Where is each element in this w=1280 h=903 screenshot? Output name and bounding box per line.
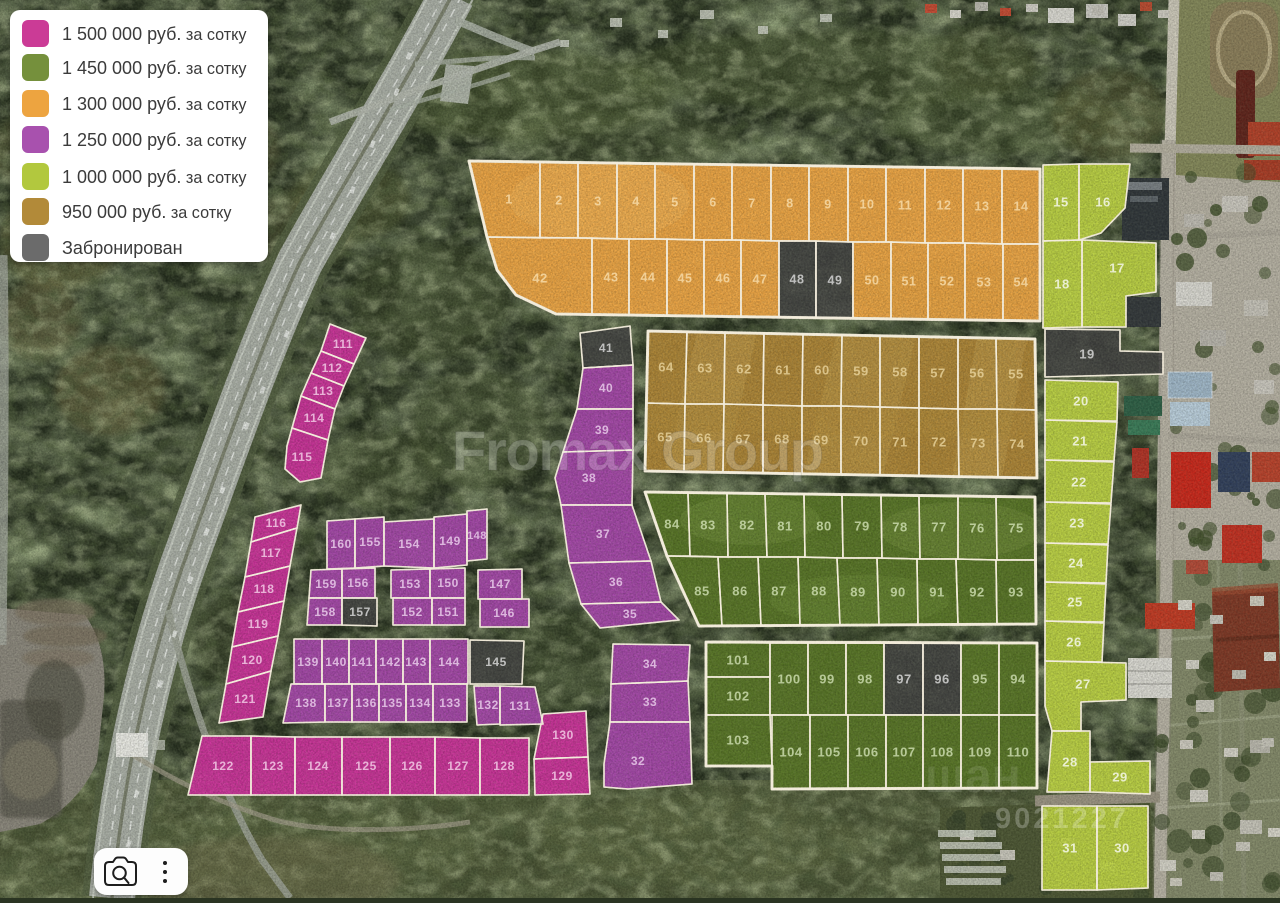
- svg-text:31: 31: [1062, 841, 1077, 856]
- svg-text:шан: шан: [925, 750, 1021, 803]
- svg-text:53: 53: [977, 275, 992, 289]
- svg-text:141: 141: [351, 655, 373, 669]
- svg-text:123: 123: [262, 759, 284, 773]
- svg-text:13: 13: [975, 199, 990, 213]
- svg-text:72: 72: [931, 435, 946, 450]
- svg-text:113: 113: [313, 384, 334, 398]
- svg-text:101: 101: [726, 653, 749, 668]
- svg-text:1 500 000 руб. за сотку: 1 500 000 руб. за сотку: [62, 24, 247, 44]
- svg-text:49: 49: [828, 273, 843, 287]
- svg-text:85: 85: [694, 584, 709, 599]
- svg-text:142: 142: [379, 655, 401, 669]
- svg-text:56: 56: [969, 366, 984, 381]
- svg-text:75: 75: [1008, 521, 1023, 536]
- svg-text:8: 8: [786, 196, 793, 210]
- svg-text:91: 91: [929, 585, 944, 600]
- svg-text:116: 116: [266, 516, 287, 530]
- svg-text:86: 86: [732, 584, 747, 599]
- svg-text:135: 135: [381, 696, 403, 710]
- svg-text:111: 111: [333, 337, 353, 351]
- svg-text:87: 87: [771, 584, 786, 599]
- svg-text:147: 147: [489, 577, 511, 591]
- svg-text:155: 155: [359, 535, 381, 549]
- svg-text:92: 92: [969, 585, 984, 600]
- svg-text:50: 50: [865, 273, 880, 287]
- svg-text:138: 138: [295, 696, 317, 710]
- svg-text:82: 82: [739, 518, 754, 533]
- svg-text:16: 16: [1095, 195, 1110, 210]
- svg-text:950 000 руб. за сотку: 950 000 руб. за сотку: [62, 202, 232, 222]
- svg-text:9021227: 9021227: [995, 803, 1129, 835]
- svg-text:28: 28: [1062, 755, 1077, 770]
- svg-text:84: 84: [664, 517, 680, 532]
- svg-text:1 450 000 руб. за сотку: 1 450 000 руб. за сотку: [62, 58, 247, 78]
- svg-text:36: 36: [609, 575, 623, 589]
- svg-text:34: 34: [643, 657, 657, 671]
- svg-text:104: 104: [779, 745, 802, 760]
- svg-text:90: 90: [890, 585, 905, 600]
- svg-text:154: 154: [398, 537, 420, 551]
- svg-text:23: 23: [1069, 516, 1084, 531]
- svg-text:102: 102: [726, 689, 749, 704]
- svg-text:144: 144: [438, 655, 460, 669]
- svg-text:18: 18: [1054, 277, 1069, 292]
- svg-text:119: 119: [248, 617, 269, 631]
- svg-text:10: 10: [860, 197, 875, 211]
- svg-text:81: 81: [777, 519, 792, 534]
- svg-text:100: 100: [777, 672, 800, 687]
- svg-text:45: 45: [678, 271, 693, 285]
- svg-text:9: 9: [824, 197, 831, 211]
- svg-text:139: 139: [297, 655, 319, 669]
- svg-text:77: 77: [931, 520, 946, 535]
- svg-text:133: 133: [439, 696, 461, 710]
- svg-text:80: 80: [816, 519, 831, 534]
- svg-text:52: 52: [940, 274, 955, 288]
- svg-text:3: 3: [594, 194, 601, 208]
- svg-text:107: 107: [892, 745, 915, 760]
- svg-text:76: 76: [969, 521, 984, 536]
- svg-text:63: 63: [697, 361, 712, 376]
- svg-text:42: 42: [532, 271, 547, 286]
- svg-text:41: 41: [599, 341, 613, 355]
- svg-text:103: 103: [726, 733, 749, 748]
- svg-text:98: 98: [857, 672, 872, 687]
- svg-text:71: 71: [892, 435, 907, 450]
- svg-text:1: 1: [505, 192, 512, 206]
- svg-text:44: 44: [641, 270, 656, 284]
- svg-text:73: 73: [970, 436, 985, 451]
- svg-text:25: 25: [1067, 595, 1082, 610]
- svg-text:12: 12: [937, 198, 952, 212]
- svg-text:120: 120: [241, 653, 263, 667]
- svg-text:30: 30: [1114, 841, 1129, 856]
- svg-text:152: 152: [401, 605, 423, 619]
- svg-text:Забронирован: Забронирован: [62, 238, 183, 258]
- svg-text:156: 156: [347, 576, 369, 590]
- svg-text:115: 115: [292, 450, 313, 464]
- svg-text:149: 149: [439, 534, 461, 548]
- svg-text:93: 93: [1008, 585, 1023, 600]
- svg-text:22: 22: [1071, 475, 1086, 490]
- svg-text:7: 7: [748, 196, 755, 210]
- svg-text:1 300 000 руб. за сотку: 1 300 000 руб. за сотку: [62, 94, 247, 114]
- svg-text:99: 99: [819, 672, 834, 687]
- svg-text:97: 97: [896, 672, 911, 687]
- svg-text:143: 143: [405, 655, 427, 669]
- svg-text:157: 157: [349, 605, 371, 619]
- svg-text:159: 159: [315, 577, 337, 591]
- svg-text:153: 153: [399, 577, 421, 591]
- svg-text:47: 47: [753, 272, 768, 286]
- svg-text:140: 140: [325, 655, 347, 669]
- svg-text:83: 83: [700, 518, 715, 533]
- svg-text:88: 88: [811, 584, 826, 599]
- svg-text:64: 64: [658, 360, 674, 375]
- svg-text:20: 20: [1073, 394, 1088, 409]
- svg-text:1 250 000 руб. за сотку: 1 250 000 руб. за сотку: [62, 130, 247, 150]
- svg-text:27: 27: [1075, 677, 1090, 692]
- svg-text:137: 137: [327, 696, 349, 710]
- svg-text:148: 148: [467, 530, 487, 542]
- svg-text:35: 35: [623, 607, 637, 621]
- svg-text:14: 14: [1014, 199, 1029, 213]
- svg-text:129: 129: [551, 769, 573, 783]
- svg-text:122: 122: [212, 759, 234, 773]
- svg-text:32: 32: [631, 754, 645, 768]
- svg-text:106: 106: [855, 745, 878, 760]
- svg-text:105: 105: [817, 745, 840, 760]
- svg-text:127: 127: [447, 759, 469, 773]
- svg-text:78: 78: [892, 520, 907, 535]
- svg-text:131: 131: [509, 699, 531, 713]
- svg-text:146: 146: [493, 606, 515, 620]
- svg-text:57: 57: [930, 366, 945, 381]
- svg-text:130: 130: [552, 728, 574, 742]
- svg-text:124: 124: [307, 759, 329, 773]
- svg-text:151: 151: [437, 605, 459, 619]
- svg-text:89: 89: [850, 585, 865, 600]
- svg-text:1 000 000 руб. за сотку: 1 000 000 руб. за сотку: [62, 167, 247, 187]
- svg-text:58: 58: [892, 365, 907, 380]
- svg-text:145: 145: [485, 655, 507, 669]
- svg-text:Fromax Group: Fromax Group: [452, 419, 824, 482]
- svg-text:15: 15: [1053, 195, 1068, 210]
- svg-text:37: 37: [596, 527, 610, 541]
- svg-text:2: 2: [555, 193, 562, 207]
- svg-text:150: 150: [437, 576, 459, 590]
- svg-text:6: 6: [709, 195, 716, 209]
- svg-text:136: 136: [355, 696, 377, 710]
- svg-text:121: 121: [234, 692, 256, 706]
- svg-text:125: 125: [355, 759, 377, 773]
- svg-text:51: 51: [902, 274, 917, 288]
- svg-text:17: 17: [1109, 261, 1124, 276]
- svg-text:74: 74: [1009, 437, 1025, 452]
- svg-text:94: 94: [1010, 672, 1026, 687]
- svg-text:126: 126: [401, 759, 423, 773]
- svg-text:132: 132: [477, 698, 499, 712]
- svg-text:43: 43: [604, 270, 619, 284]
- svg-text:112: 112: [322, 361, 343, 375]
- svg-text:160: 160: [330, 537, 352, 551]
- svg-text:26: 26: [1066, 635, 1081, 650]
- svg-text:21: 21: [1072, 434, 1087, 449]
- svg-text:59: 59: [853, 364, 868, 379]
- svg-text:70: 70: [853, 434, 868, 449]
- svg-text:95: 95: [972, 672, 987, 687]
- svg-text:5: 5: [671, 195, 678, 209]
- svg-text:40: 40: [599, 381, 613, 395]
- svg-text:62: 62: [736, 362, 751, 377]
- svg-text:114: 114: [304, 411, 325, 425]
- svg-text:128: 128: [493, 759, 515, 773]
- svg-text:55: 55: [1008, 367, 1023, 382]
- svg-text:118: 118: [254, 582, 275, 596]
- svg-text:54: 54: [1014, 275, 1029, 289]
- svg-text:11: 11: [898, 198, 912, 212]
- svg-text:117: 117: [261, 546, 282, 560]
- svg-text:60: 60: [814, 363, 829, 378]
- svg-text:4: 4: [632, 194, 639, 208]
- svg-text:61: 61: [775, 363, 790, 378]
- svg-text:158: 158: [314, 605, 336, 619]
- svg-text:48: 48: [790, 272, 805, 286]
- svg-text:29: 29: [1112, 770, 1127, 785]
- svg-text:24: 24: [1068, 556, 1084, 571]
- svg-text:96: 96: [934, 672, 949, 687]
- svg-text:33: 33: [643, 695, 657, 709]
- svg-text:46: 46: [716, 271, 731, 285]
- svg-text:19: 19: [1079, 347, 1094, 362]
- svg-text:134: 134: [409, 696, 431, 710]
- svg-text:79: 79: [854, 519, 869, 534]
